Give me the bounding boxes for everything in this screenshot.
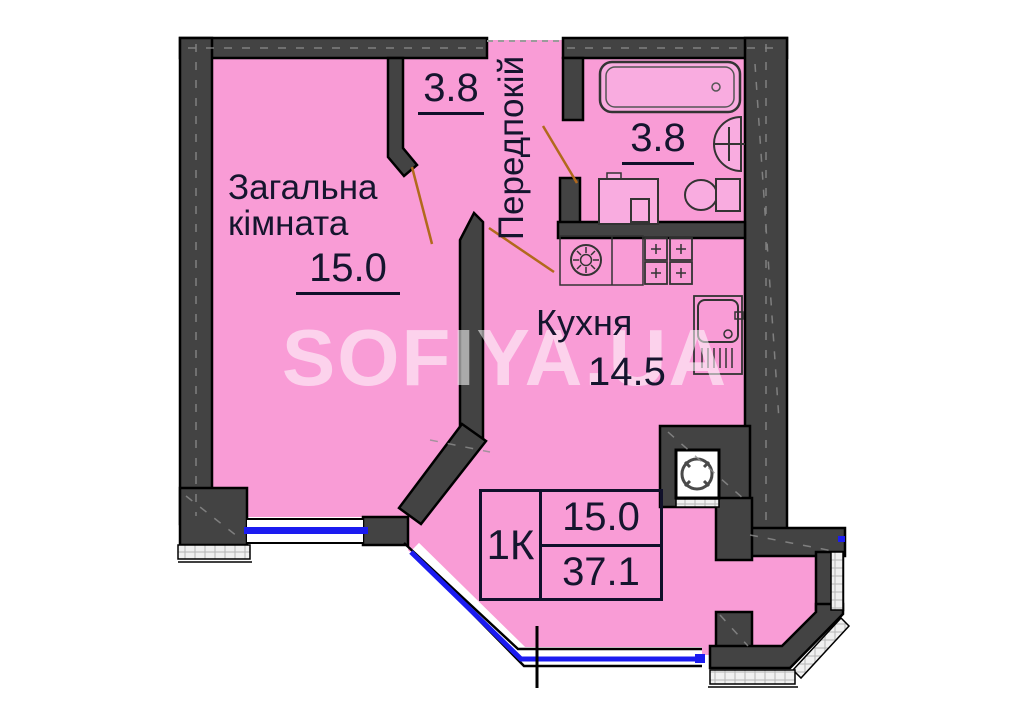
floor-plan-image: SOFIYA.UA Загальна кімната 15.0 3.8 Пере… — [0, 0, 1024, 724]
sill-bay-right — [831, 552, 843, 610]
living-room-label: Загальна кімната — [228, 170, 378, 242]
living-window-glass — [244, 527, 368, 534]
living-area-cell: 15.0 — [542, 492, 660, 547]
wall-corner-bottom-left — [180, 488, 247, 545]
sill-vent — [676, 499, 719, 507]
wall-window-pier-right — [363, 517, 408, 545]
living-room-label-line1: Загальна — [228, 170, 378, 206]
bathroom-area: 3.8 — [622, 116, 694, 165]
sill-bay-bottom — [710, 670, 795, 684]
washing-machine-icon — [599, 173, 658, 224]
kitchen-area: 14.5 — [588, 350, 666, 395]
hallway-label: Передпокій — [492, 56, 532, 240]
living-room-label-line2: кімната — [228, 206, 378, 242]
closet-area: 3.8 — [418, 66, 484, 115]
side-window-glass-mark — [838, 536, 845, 542]
bathtub-icon — [600, 62, 740, 112]
unit-type-cell: 1К — [482, 492, 542, 598]
bay-opening — [716, 560, 752, 612]
bay-window-glass-endcap — [695, 654, 705, 663]
wall-hall-bath-lower — [560, 178, 580, 225]
living-room-area: 15.0 — [296, 246, 400, 295]
toilet-icon — [685, 179, 740, 211]
wall-hall-bath-upper — [563, 58, 583, 120]
summary-table: 1К 15.0 37.1 — [479, 489, 663, 601]
summary-values-column: 15.0 37.1 — [542, 492, 660, 598]
total-area-cell: 37.1 — [542, 547, 660, 599]
wall-bay-left-upper — [716, 498, 752, 560]
sill-bottom-left — [178, 545, 250, 559]
kitchen-label: Кухня — [536, 302, 632, 344]
